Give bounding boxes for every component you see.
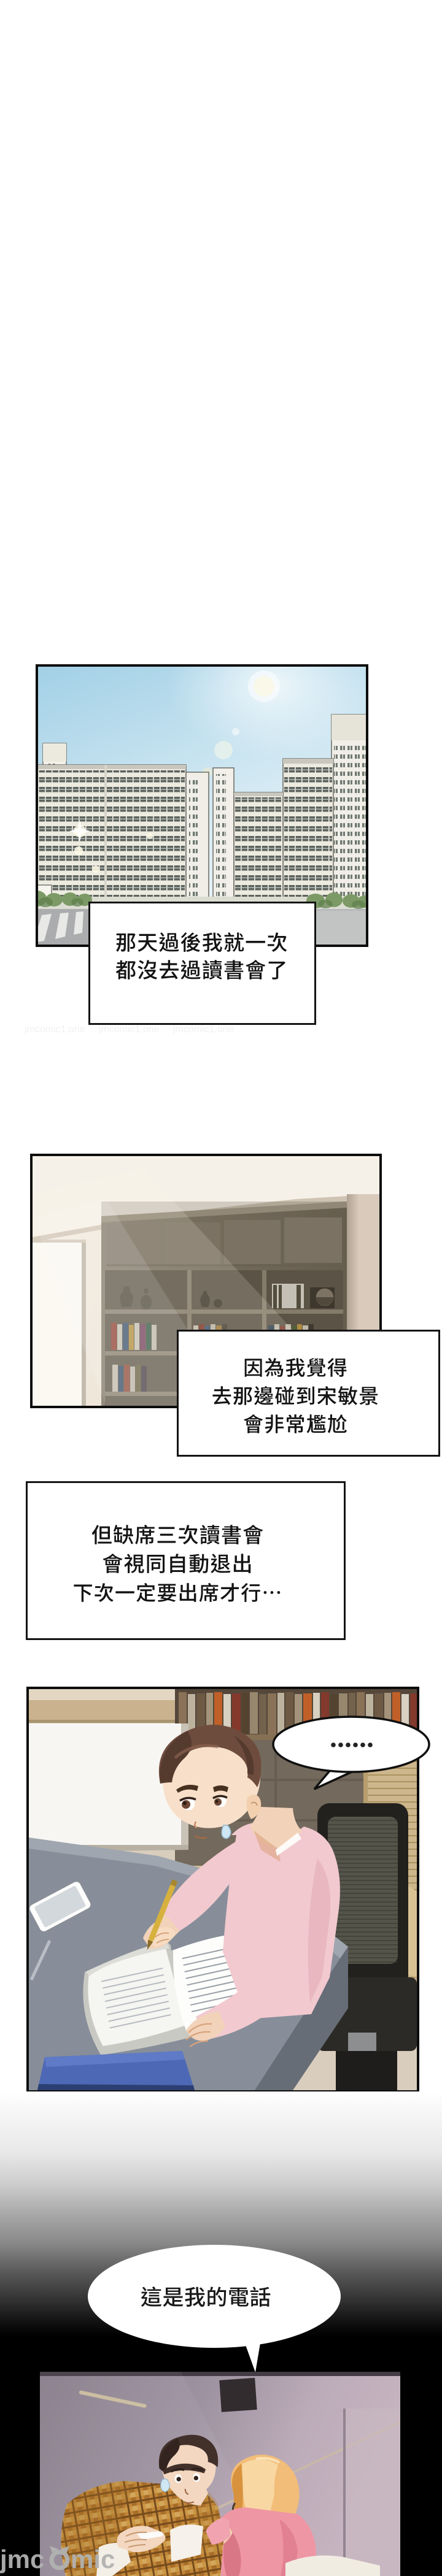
svg-text:mic: mic: [71, 2545, 115, 2574]
svg-text:jmc: jmc: [0, 2545, 44, 2574]
